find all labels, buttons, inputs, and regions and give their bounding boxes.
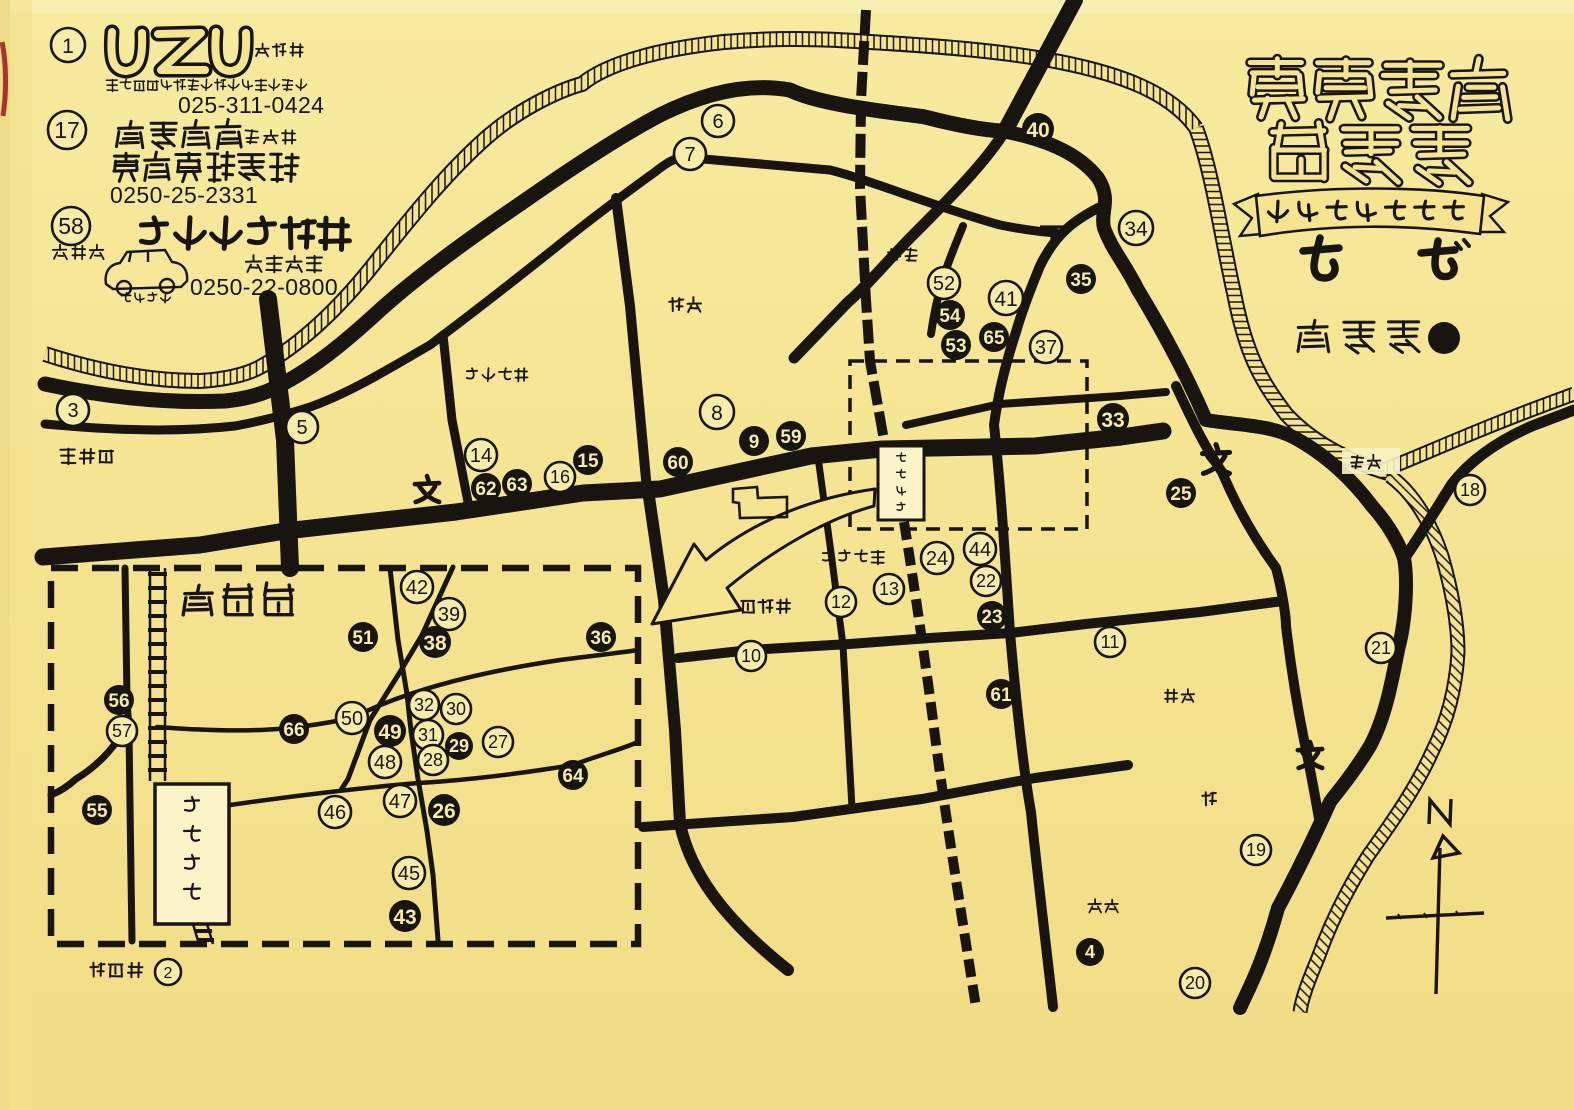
svg-text:27: 27 [488,732,508,752]
svg-text:7: 7 [684,144,695,166]
svg-text:22: 22 [976,571,996,591]
svg-text:4: 4 [1085,942,1095,962]
svg-text:14: 14 [470,445,492,467]
svg-text:6: 6 [712,111,723,133]
svg-text:34: 34 [1124,218,1148,241]
svg-text:25: 25 [1170,484,1192,505]
svg-text:35: 35 [1070,270,1092,291]
svg-text:39: 39 [438,604,460,626]
svg-text:16: 16 [550,467,570,487]
svg-text:43: 43 [393,906,416,929]
svg-text:46: 46 [324,802,346,824]
svg-text:38: 38 [423,632,447,655]
svg-text:28: 28 [423,750,443,770]
svg-text:0250-22-0800: 0250-22-0800 [190,274,338,300]
svg-text:48: 48 [374,752,396,774]
svg-text:49: 49 [378,721,401,744]
svg-text:58: 58 [58,213,84,239]
svg-text:3: 3 [67,400,78,422]
svg-text:18: 18 [1460,480,1480,500]
svg-text:60: 60 [667,453,688,474]
svg-text:63: 63 [506,475,527,496]
svg-text:20: 20 [1185,973,1205,993]
svg-text:55: 55 [86,801,108,822]
svg-text:13: 13 [879,579,899,599]
svg-text:62: 62 [475,479,496,500]
svg-text:26: 26 [432,800,455,823]
svg-text:11: 11 [1101,632,1120,652]
svg-text:56: 56 [108,691,129,712]
svg-text:47: 47 [389,791,411,813]
svg-text:31: 31 [418,725,438,745]
svg-text:32: 32 [414,695,434,715]
svg-text:51: 51 [352,628,374,649]
svg-text:5: 5 [296,417,307,439]
svg-text:33: 33 [1101,409,1124,432]
svg-text:10: 10 [741,646,761,666]
svg-text:23: 23 [981,607,1002,628]
svg-text:025-311-0424: 025-311-0424 [178,92,324,118]
svg-text:12: 12 [831,592,851,612]
svg-text:61: 61 [990,685,1012,706]
svg-text:59: 59 [780,427,801,448]
svg-text:65: 65 [983,328,1005,349]
svg-text:57: 57 [112,721,132,741]
svg-text:15: 15 [577,451,599,472]
svg-text:9: 9 [749,432,760,453]
svg-text:2: 2 [164,965,173,982]
svg-text:0250-25-2331: 0250-25-2331 [110,182,258,208]
svg-text:45: 45 [398,863,420,885]
svg-text:21: 21 [1371,638,1391,658]
svg-text:50: 50 [341,708,363,730]
svg-text:36: 36 [590,628,611,649]
svg-text:53: 53 [945,336,966,357]
svg-text:24: 24 [926,548,948,570]
svg-text:29: 29 [449,736,469,756]
svg-text:17: 17 [54,117,80,143]
svg-text:37: 37 [1035,337,1057,359]
svg-text:64: 64 [562,766,584,787]
svg-text:42: 42 [406,577,428,599]
svg-text:41: 41 [994,288,1017,311]
svg-text:44: 44 [969,539,991,561]
svg-text:30: 30 [446,699,466,719]
svg-text:8: 8 [711,402,723,425]
svg-text:54: 54 [939,306,961,327]
svg-text:40: 40 [1026,119,1049,142]
svg-text:19: 19 [1246,840,1266,860]
svg-text:1: 1 [62,35,74,58]
svg-text:52: 52 [933,273,955,295]
svg-text:66: 66 [283,720,304,741]
